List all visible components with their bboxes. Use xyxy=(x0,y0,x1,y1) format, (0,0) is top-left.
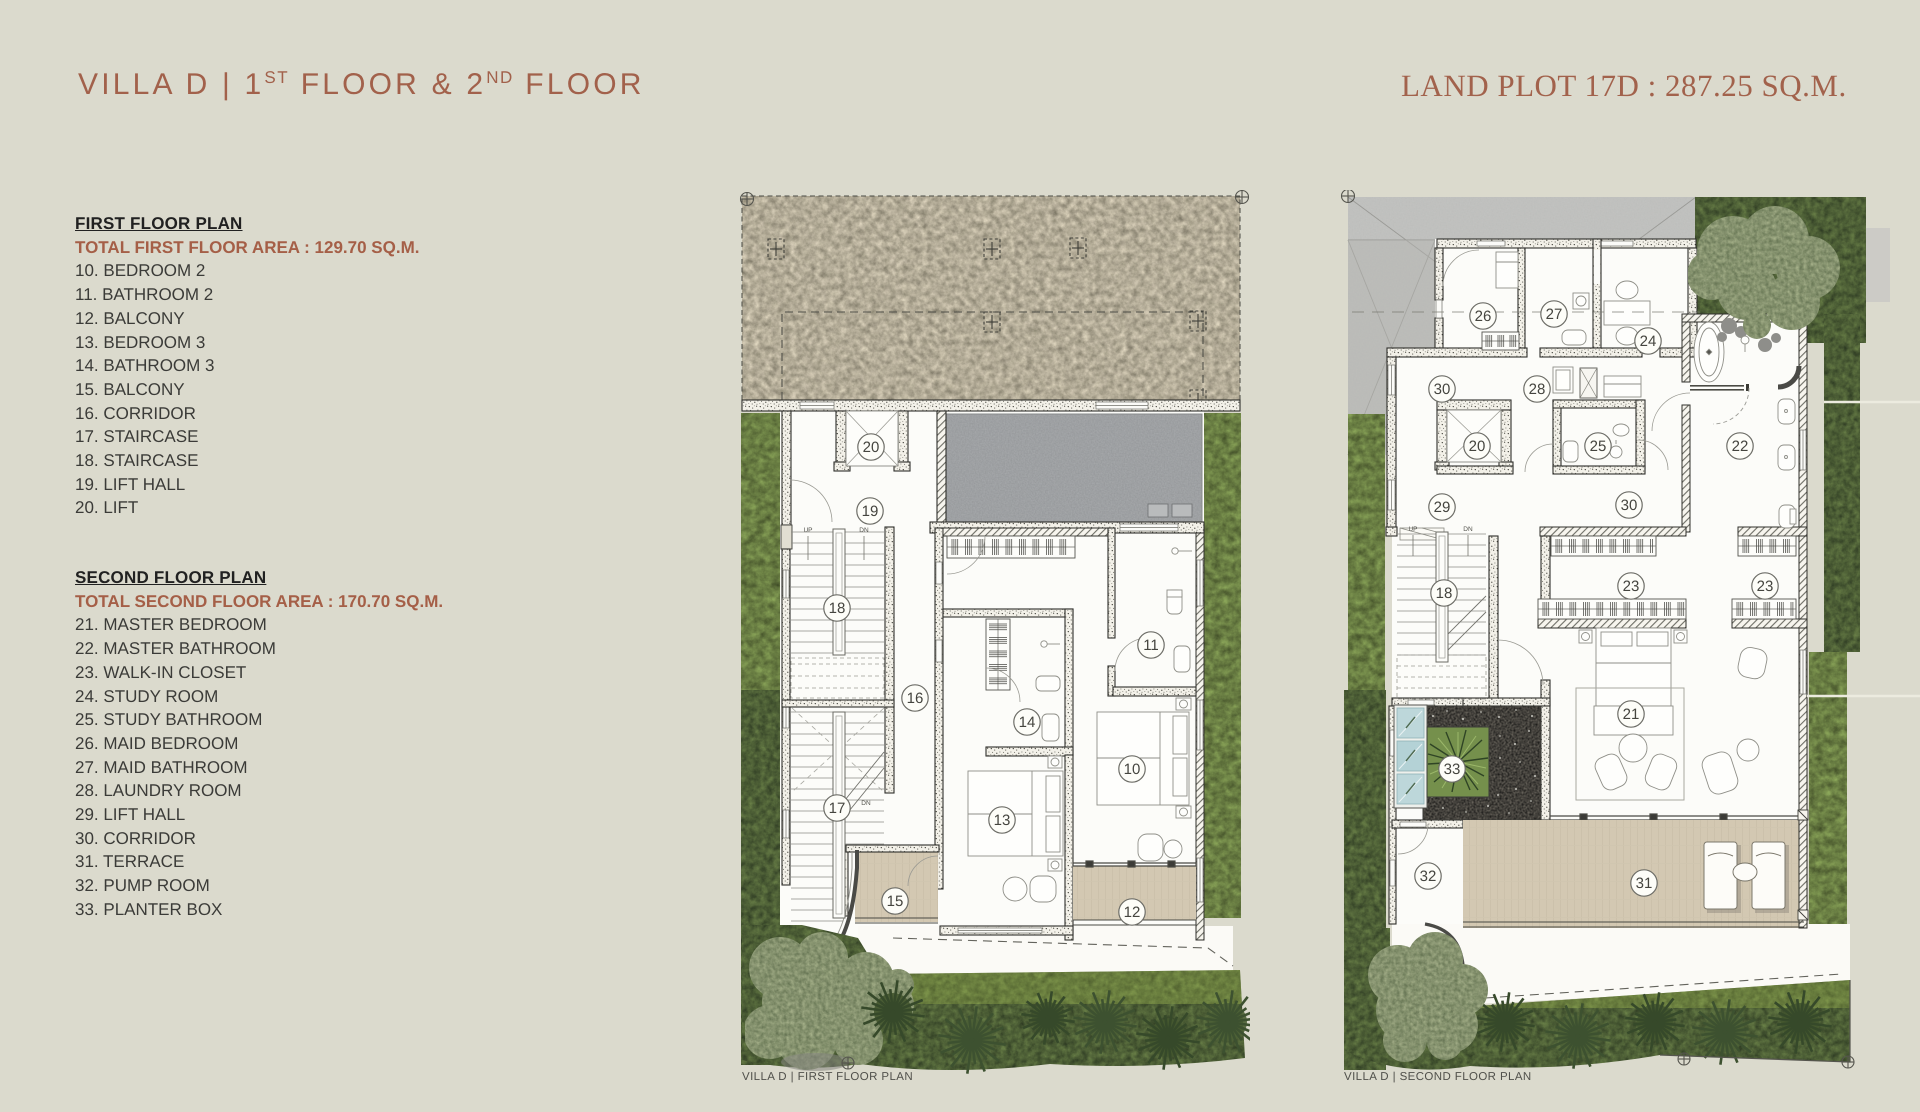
svg-text:21: 21 xyxy=(1623,706,1640,723)
svg-text:DN: DN xyxy=(1463,526,1473,533)
svg-text:10: 10 xyxy=(1124,761,1141,778)
svg-text:33: 33 xyxy=(1444,761,1461,778)
svg-text:11: 11 xyxy=(1143,637,1159,654)
svg-text:17: 17 xyxy=(829,800,846,817)
svg-text:31: 31 xyxy=(1636,875,1653,892)
svg-text:24: 24 xyxy=(1640,333,1657,350)
svg-text:32: 32 xyxy=(1420,868,1437,885)
svg-text:23: 23 xyxy=(1623,578,1640,595)
svg-text:25: 25 xyxy=(1590,438,1607,455)
svg-text:UP: UP xyxy=(1408,526,1417,533)
svg-text:13: 13 xyxy=(994,812,1011,829)
svg-text:UP: UP xyxy=(803,527,812,534)
svg-text:19: 19 xyxy=(862,503,879,520)
svg-text:30: 30 xyxy=(1434,381,1451,398)
svg-text:20: 20 xyxy=(1469,438,1486,455)
svg-text:27: 27 xyxy=(1546,306,1563,323)
svg-text:28: 28 xyxy=(1529,381,1546,398)
svg-text:26: 26 xyxy=(1475,308,1492,325)
svg-text:23: 23 xyxy=(1757,578,1774,595)
svg-text:22: 22 xyxy=(1732,438,1749,455)
svg-text:18: 18 xyxy=(829,600,846,617)
svg-text:16: 16 xyxy=(907,690,924,707)
svg-text:18: 18 xyxy=(1436,585,1453,602)
svg-text:DN: DN xyxy=(859,527,869,534)
svg-text:29: 29 xyxy=(1434,499,1451,516)
svg-text:DN: DN xyxy=(861,800,871,807)
svg-text:30: 30 xyxy=(1621,497,1638,514)
svg-text:20: 20 xyxy=(863,439,880,456)
svg-text:15: 15 xyxy=(887,893,904,910)
svg-text:14: 14 xyxy=(1019,714,1036,731)
svg-text:12: 12 xyxy=(1124,904,1141,921)
